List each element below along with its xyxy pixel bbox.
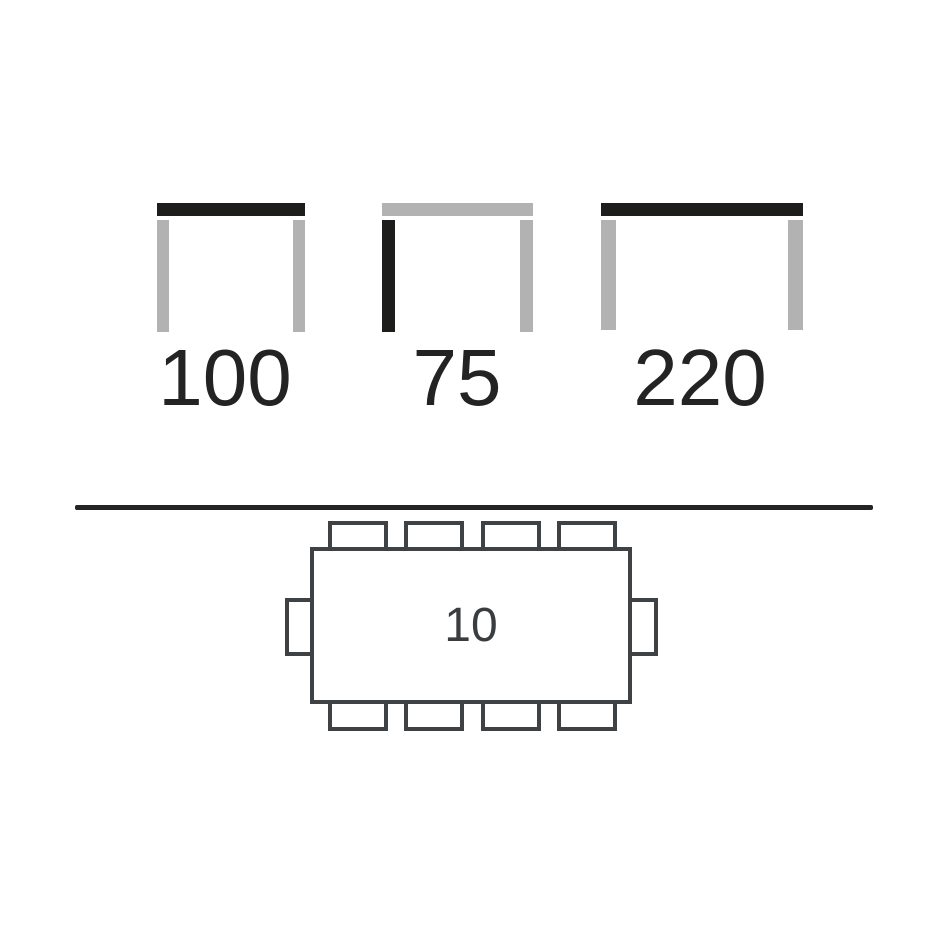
section-divider [75, 505, 873, 510]
table-length-icon [601, 203, 803, 333]
height-dimension-value: 75 [347, 338, 567, 418]
tabletop-bar-icon [157, 203, 305, 216]
table-height-icon [382, 203, 533, 333]
length-dimension-value: 220 [590, 338, 810, 418]
width-dimension-value: 100 [115, 338, 335, 418]
tabletop-bar-icon [601, 203, 803, 216]
table-top-view: 10 [310, 547, 632, 704]
chair [628, 598, 658, 656]
seating-capacity-value: 10 [444, 602, 497, 650]
table-leg-icon [157, 220, 169, 332]
table-width-icon [157, 203, 305, 333]
tabletop-bar-icon [382, 203, 533, 216]
table-leg-icon [520, 220, 533, 332]
table-leg-icon [788, 220, 803, 330]
table-leg-icon [601, 220, 616, 330]
table-spec-diagram: 100 75 220 10 [0, 0, 950, 950]
table-leg-icon [293, 220, 305, 332]
table-leg-icon [382, 220, 395, 332]
